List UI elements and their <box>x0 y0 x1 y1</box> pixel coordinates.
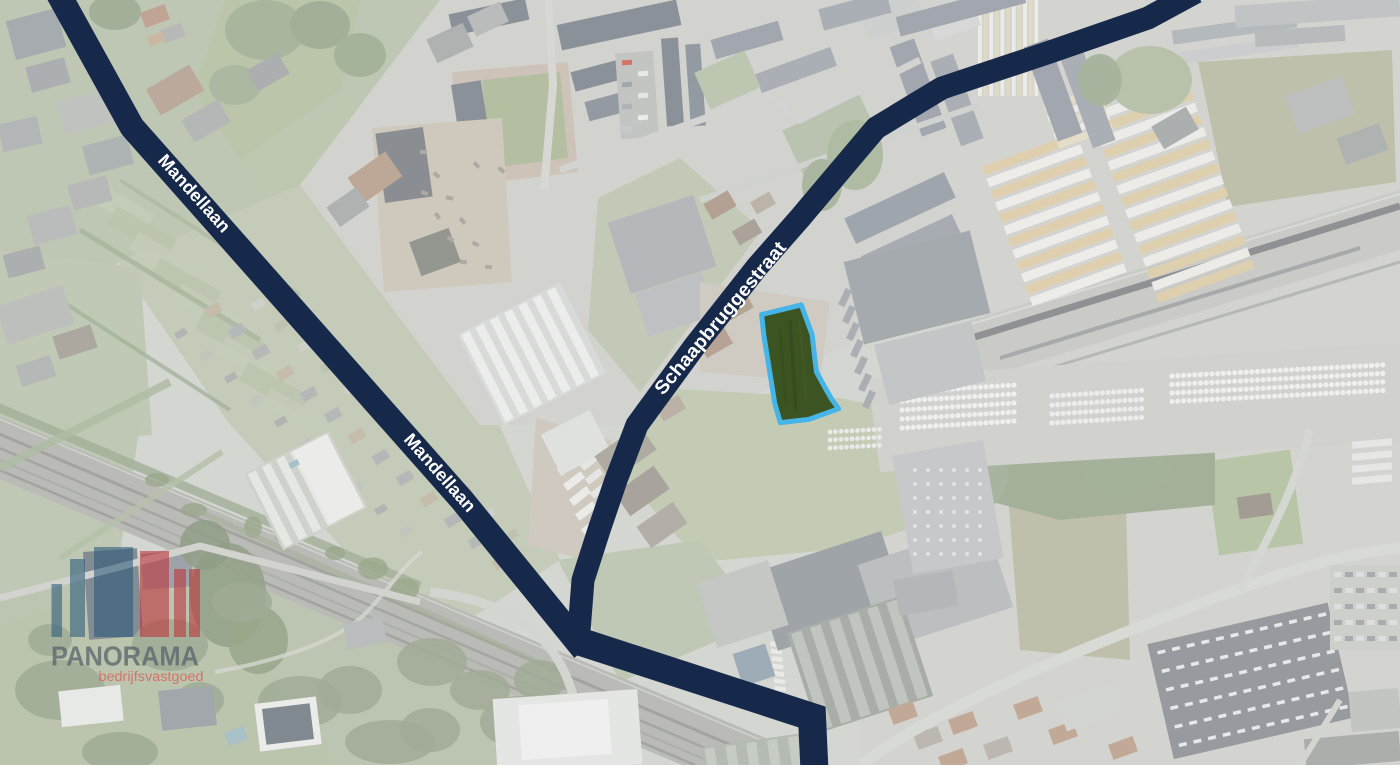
svg-text:bedrijfsvastgoed: bedrijfsvastgoed <box>99 669 204 684</box>
svg-text:PANORAMA: PANORAMA <box>51 641 199 672</box>
